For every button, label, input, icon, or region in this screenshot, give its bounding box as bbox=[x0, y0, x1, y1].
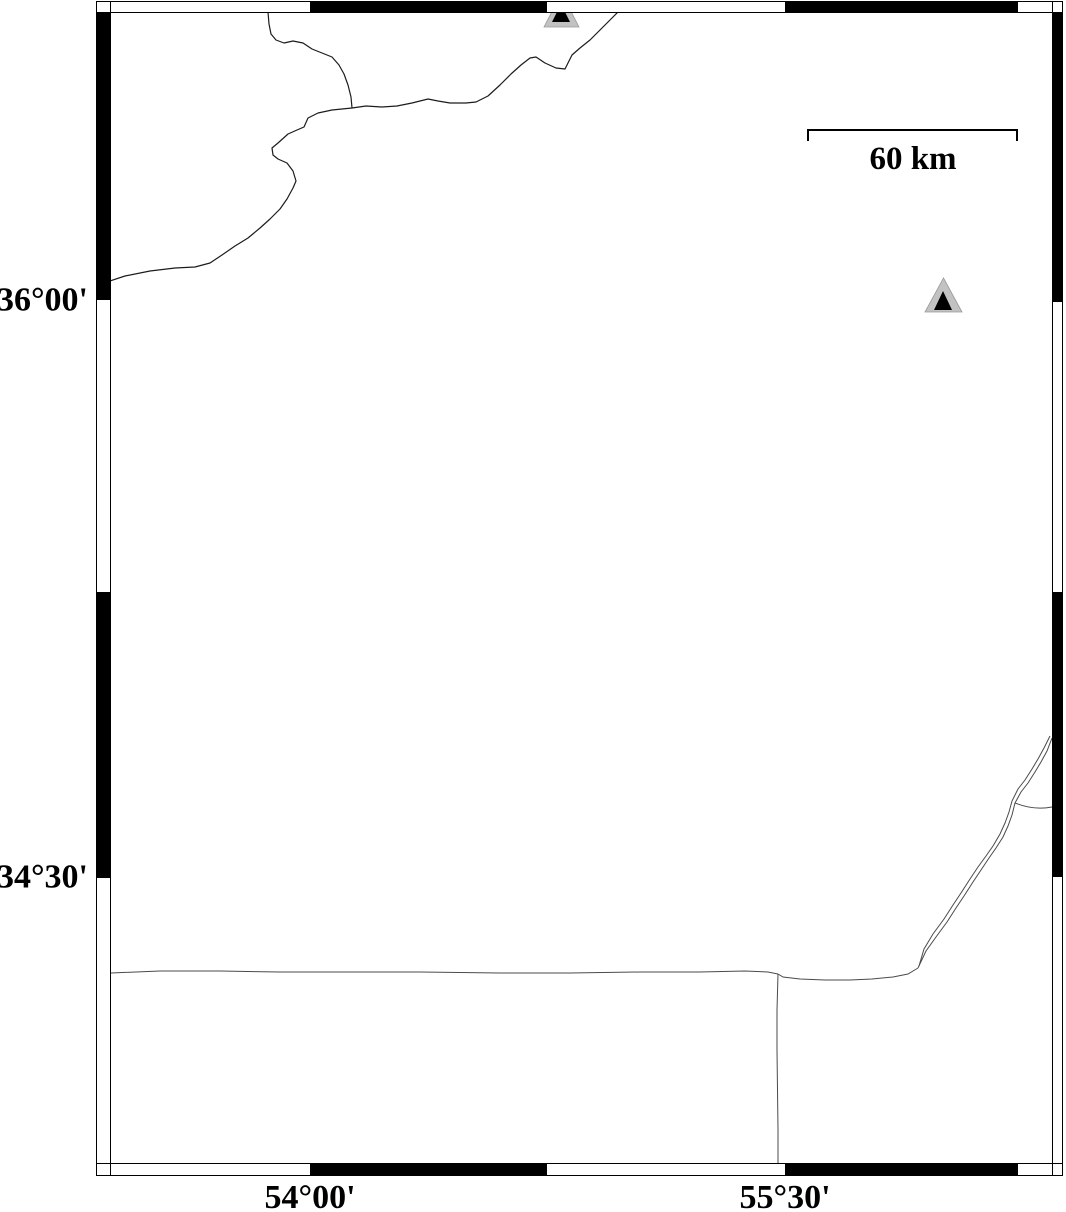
border-diagonal-path-2 bbox=[919, 736, 1050, 966]
frame-tick-segment bbox=[1053, 592, 1062, 877]
map-svg bbox=[0, 0, 1066, 1212]
border-branch-path bbox=[1015, 803, 1052, 808]
scale-bar-line bbox=[808, 130, 1017, 141]
frame-tick-segment bbox=[310, 1164, 547, 1175]
frame-tick-segment bbox=[97, 13, 110, 300]
border-vertical-path bbox=[777, 974, 778, 1163]
border-diagonal-path-1 bbox=[918, 738, 1052, 968]
coastline-main-path bbox=[110, 12, 618, 281]
scale-bar-label: 60 km bbox=[869, 143, 956, 176]
border-south-path bbox=[110, 971, 778, 974]
frame-tick-segment bbox=[97, 592, 110, 878]
lon-label-54-00: 54°00' bbox=[264, 1181, 355, 1212]
frame-tick-segment bbox=[1053, 13, 1062, 302]
map-figure: 36°00' 34°30' 54°00' 55°30' 60 km bbox=[0, 0, 1066, 1212]
frame-tick-segment bbox=[310, 2, 547, 12]
lon-label-55-30: 55°30' bbox=[739, 1181, 830, 1212]
frame-tick-segment bbox=[785, 1164, 1018, 1175]
frame-tick-segment bbox=[785, 2, 1018, 12]
coastline-branch-path bbox=[268, 12, 352, 108]
lat-label-34-30: 34°30' bbox=[0, 860, 88, 894]
frame-inner-gridlines bbox=[97, 2, 1063, 1176]
frame-outer-rect bbox=[97, 2, 1063, 1176]
lat-label-36-00: 36°00' bbox=[0, 283, 88, 317]
border-step-path bbox=[778, 968, 918, 980]
